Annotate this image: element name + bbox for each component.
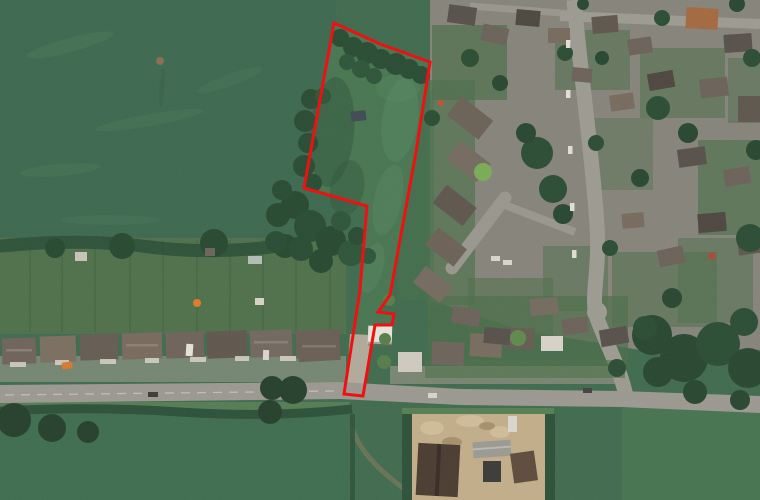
photo-grain-overlay [0, 0, 760, 500]
aerial-map[interactable] [0, 0, 760, 500]
aerial-map-svg [0, 0, 760, 500]
